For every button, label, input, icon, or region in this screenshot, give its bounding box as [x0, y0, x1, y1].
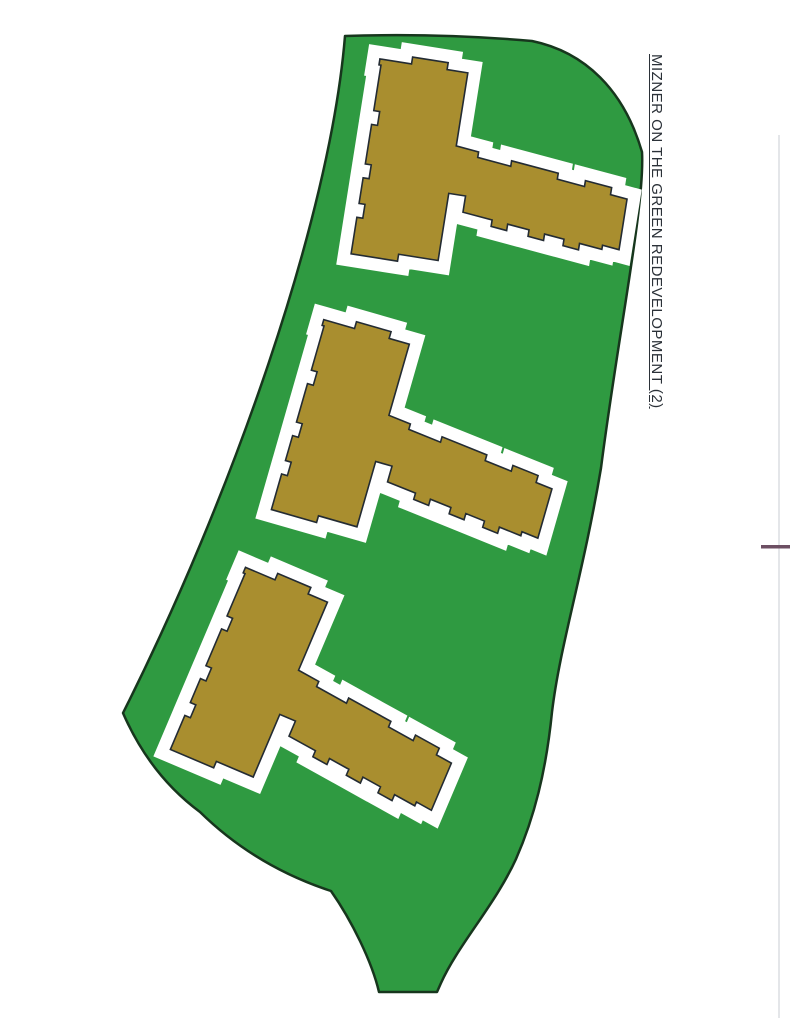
scan-artifact-mark — [761, 545, 790, 549]
scanned-page: MIZNER ON THE GREEN REDEVELOPMENT (2) — [0, 0, 791, 1024]
plan-title: MIZNER ON THE GREEN REDEVELOPMENT (2) — [648, 54, 665, 409]
site-plan-canvas — [0, 0, 791, 1024]
